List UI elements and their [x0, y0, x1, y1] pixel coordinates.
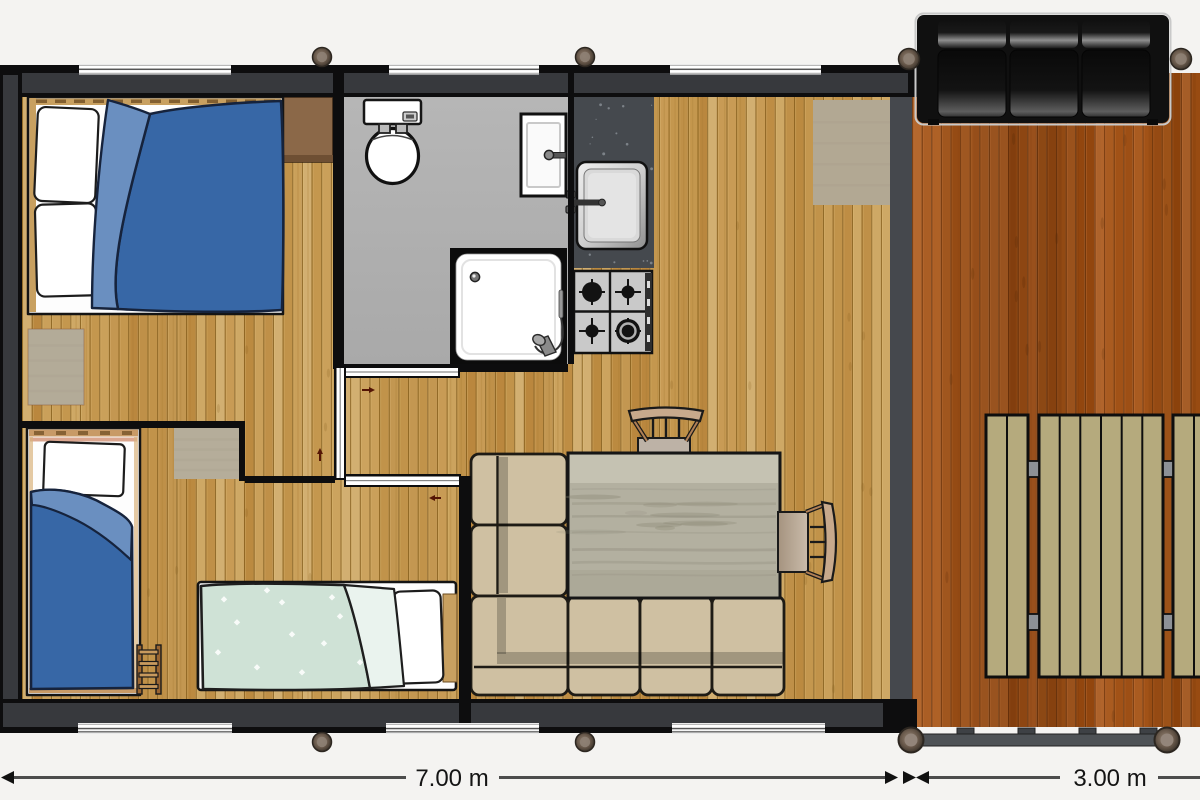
svg-text:3.00 m: 3.00 m — [1073, 765, 1146, 792]
svg-text:7.00 m: 7.00 m — [415, 765, 488, 792]
